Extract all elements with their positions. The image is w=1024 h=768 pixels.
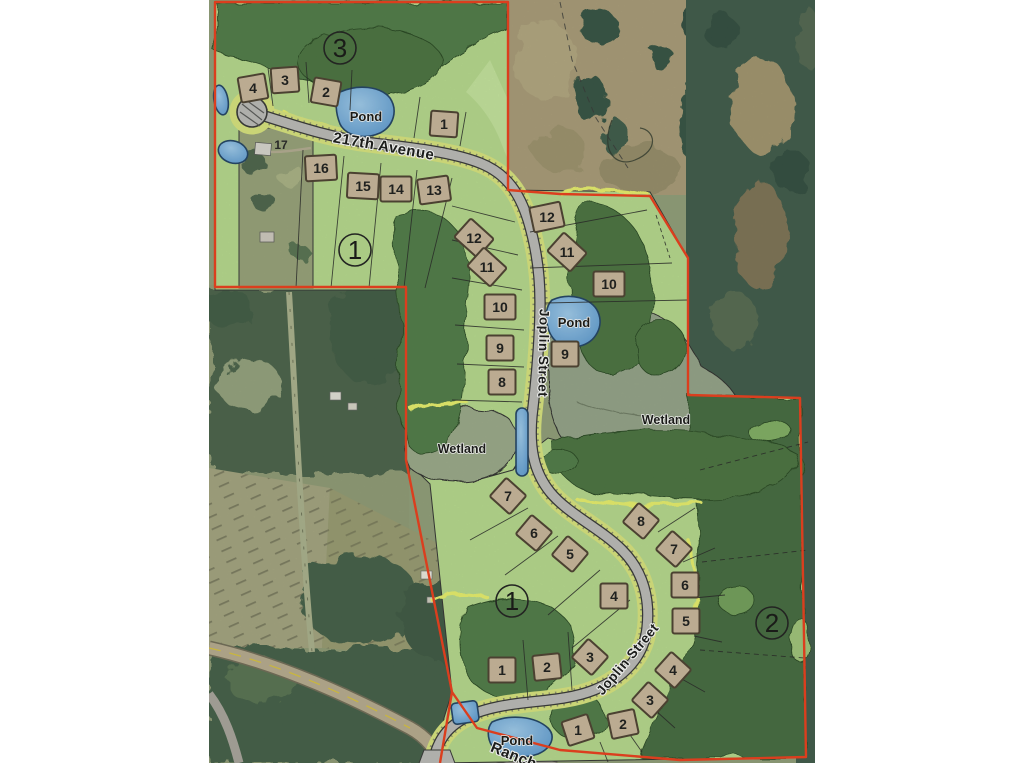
plat-map-viewport: 4321161514131211109812111097654123876543…	[0, 0, 1024, 768]
plat-map: 4321161514131211109812111097654123876543…	[0, 0, 1024, 768]
photo-grain-overlay	[209, 0, 815, 763]
